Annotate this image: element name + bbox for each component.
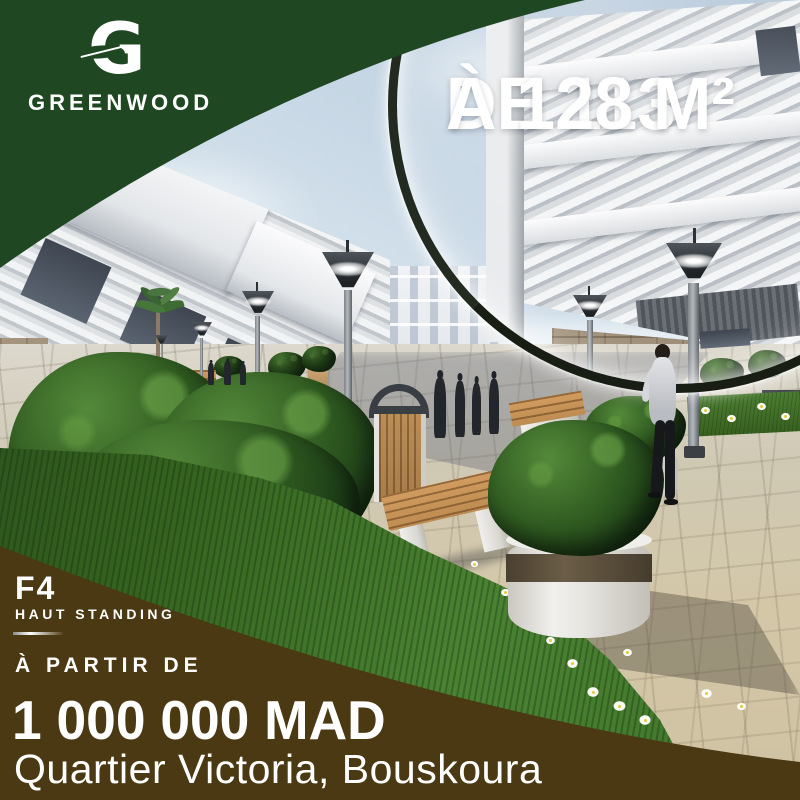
planter-bush xyxy=(488,420,664,556)
unit-type: F4 xyxy=(15,570,56,607)
headline-line2: À 128 M² xyxy=(446,54,735,154)
daisy xyxy=(700,406,711,415)
quality-label: HAUT STANDING xyxy=(15,606,175,622)
pedestrian-woman xyxy=(642,344,686,508)
ad-poster: G GREENWOOD DE 113 À 128 M² F4 HAUT STAN… xyxy=(0,0,800,800)
price-label: À PARTIR DE xyxy=(15,654,203,678)
pedestrian xyxy=(207,360,215,385)
location: Quartier Victoria, Bouskoura xyxy=(14,746,542,793)
daisy xyxy=(780,412,791,421)
daisy xyxy=(726,414,737,423)
pedestrian xyxy=(223,358,232,385)
palm-tree xyxy=(132,288,188,334)
daisy xyxy=(756,402,767,411)
pedestrian xyxy=(239,361,247,385)
brand-name: GREENWOOD xyxy=(28,90,248,116)
price: 1 000 000 MAD xyxy=(12,688,386,752)
divider-rule xyxy=(13,632,63,635)
